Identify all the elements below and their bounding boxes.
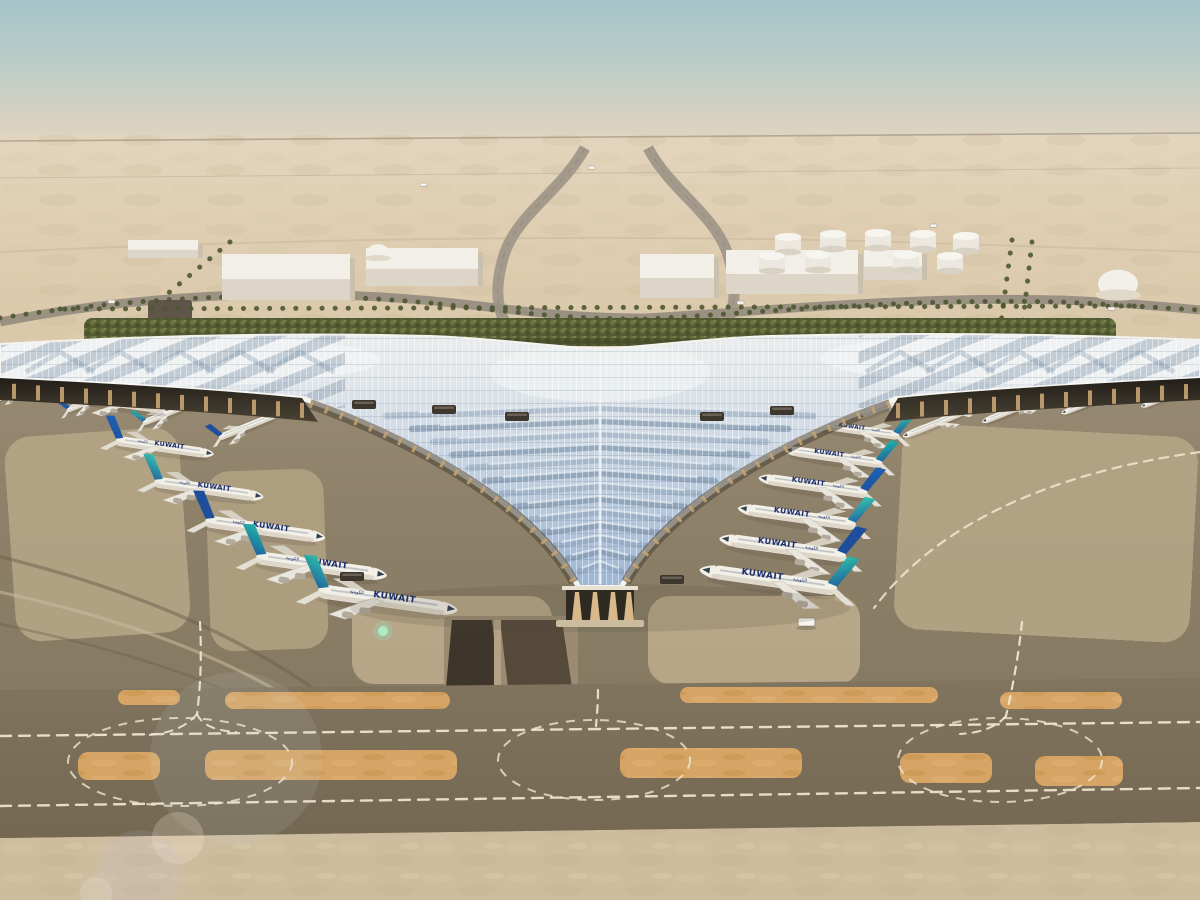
storage-tank <box>775 233 801 255</box>
sky <box>0 0 1200 150</box>
storage-tank <box>759 252 785 274</box>
vehicle <box>108 300 115 303</box>
storage-tank <box>805 251 831 273</box>
vehicle <box>588 166 595 169</box>
warehouse-building <box>222 254 355 300</box>
road-underpass <box>148 300 192 320</box>
vehicle <box>930 224 937 227</box>
vehicle <box>1108 307 1115 310</box>
ground-vehicle <box>432 405 456 414</box>
warehouse-building <box>128 240 203 258</box>
storage-tank <box>953 232 979 254</box>
vehicle <box>737 301 744 304</box>
aerial-rendering: KUWAITالكويتيةKUWAITالكويتيةKUWAITالكويت… <box>0 0 1200 900</box>
ground-vehicle <box>352 400 376 409</box>
ground-vehicle <box>770 406 794 415</box>
entrance-pavilion <box>556 586 644 627</box>
ground-vehicle <box>700 412 724 421</box>
ground-vehicle <box>660 575 684 584</box>
storage-tank <box>865 229 891 251</box>
storage-tank <box>937 252 963 274</box>
ground-vehicle <box>505 412 529 421</box>
warehouse-building <box>640 254 719 298</box>
storage-tank <box>820 230 846 252</box>
vehicle <box>420 183 427 186</box>
scene-canvas: KUWAITالكويتيةKUWAITالكويتيةKUWAITالكويت… <box>0 0 1200 900</box>
warehouse-building <box>726 250 863 294</box>
storage-tank <box>893 251 919 273</box>
ground-vehicle <box>340 572 364 581</box>
storage-tank <box>910 230 936 252</box>
